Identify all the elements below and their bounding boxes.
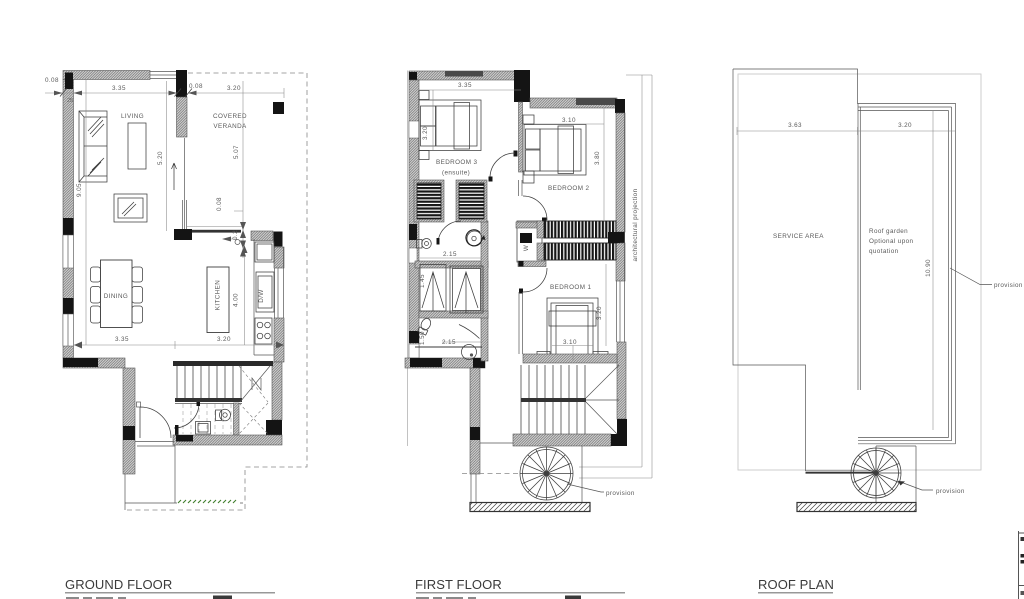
svg-text:Optional upon: Optional upon	[869, 238, 914, 245]
svg-text:0.08: 0.08	[216, 197, 223, 211]
svg-text:provision: provision	[936, 488, 965, 495]
svg-text:LIVING: LIVING	[121, 113, 144, 120]
svg-text:0.08: 0.08	[45, 77, 59, 84]
svg-text:3.20: 3.20	[596, 306, 603, 320]
svg-text:3.10: 3.10	[563, 339, 577, 346]
svg-text:0.08: 0.08	[189, 83, 203, 90]
svg-text:SERVICE AREA: SERVICE AREA	[773, 233, 824, 240]
svg-text:3.35: 3.35	[115, 336, 129, 343]
svg-text:BEDROOM 3: BEDROOM 3	[436, 159, 477, 166]
svg-text:BEDROOM 1: BEDROOM 1	[550, 284, 591, 291]
svg-text:0.2: 0.2	[232, 230, 239, 240]
svg-text:5.20: 5.20	[157, 151, 164, 165]
svg-text:Roof garden: Roof garden	[869, 228, 908, 235]
svg-text:DINING: DINING	[104, 293, 128, 300]
svg-text:1.45: 1.45	[419, 274, 426, 288]
svg-text:ROOF PLAN: ROOF PLAN	[758, 577, 834, 592]
svg-text:3.20: 3.20	[422, 126, 429, 140]
svg-text:3.10: 3.10	[562, 117, 576, 124]
svg-text:architectural projection: architectural projection	[632, 188, 639, 261]
svg-text:COVERED: COVERED	[213, 113, 247, 120]
svg-text:W: W	[523, 245, 530, 251]
svg-text:FIRST FLOOR: FIRST FLOOR	[415, 577, 502, 592]
svg-text:quotation: quotation	[869, 248, 899, 255]
svg-text:4.00: 4.00	[233, 293, 240, 307]
svg-text:BEDROOM 2: BEDROOM 2	[548, 185, 589, 192]
svg-text:3.20: 3.20	[227, 85, 241, 92]
svg-text:9.05: 9.05	[76, 183, 83, 197]
svg-text:5.07: 5.07	[233, 145, 240, 159]
svg-text:KITCHEN: KITCHEN	[215, 280, 222, 310]
svg-text:provision: provision	[994, 282, 1023, 289]
svg-text:3.35: 3.35	[112, 85, 126, 92]
svg-text:2.15: 2.15	[442, 339, 456, 346]
svg-text:2.15: 2.15	[443, 251, 457, 258]
svg-text:25: 25	[67, 98, 73, 104]
svg-text:3.35: 3.35	[458, 82, 472, 89]
svg-text:10.90: 10.90	[925, 259, 932, 277]
svg-text:VERANDA: VERANDA	[213, 123, 247, 130]
svg-text:3.20: 3.20	[898, 122, 912, 129]
svg-text:GROUND FLOOR: GROUND FLOOR	[65, 577, 172, 592]
svg-text:1.50: 1.50	[419, 331, 426, 345]
svg-text:provision: provision	[606, 490, 635, 497]
svg-text:3.63: 3.63	[788, 122, 802, 129]
svg-text:3.80: 3.80	[594, 151, 601, 165]
svg-text:D/W: D/W	[258, 289, 265, 302]
svg-text:(ensuite): (ensuite)	[442, 170, 470, 177]
svg-text:3.20: 3.20	[217, 336, 231, 343]
